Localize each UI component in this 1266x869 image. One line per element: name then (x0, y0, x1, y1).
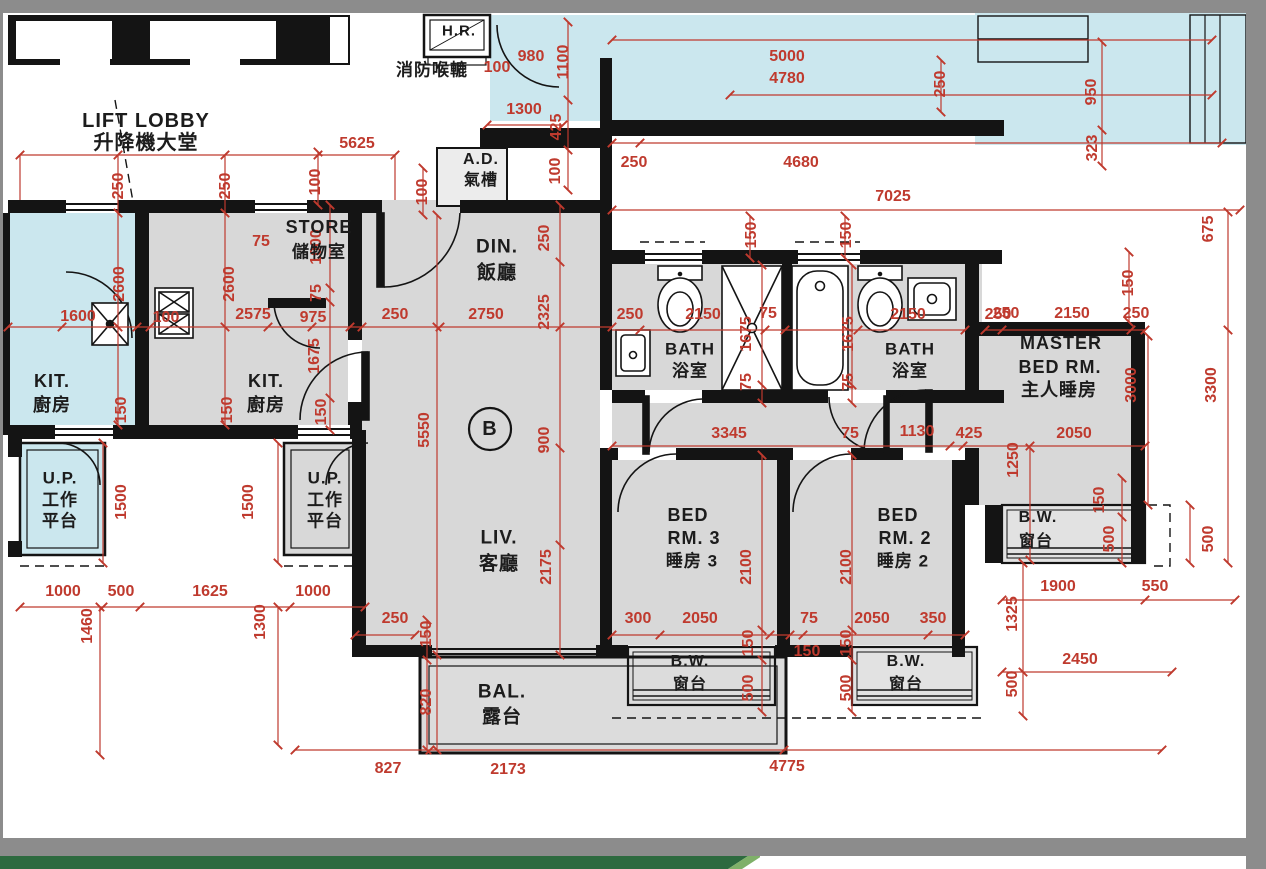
basin-icon (616, 330, 650, 376)
toilet-icon (858, 266, 902, 332)
top-gray-bar (0, 0, 1266, 13)
left-gray-bar (0, 13, 3, 838)
bathtub-icon (792, 266, 848, 390)
kitchen-sink-icon (92, 303, 128, 345)
floor-plan-drawing (0, 0, 1266, 869)
hose-reel-box (424, 15, 490, 65)
right-gray-bar (1246, 0, 1266, 869)
basin-icon (908, 278, 956, 320)
bottom-gray-bar (0, 838, 1246, 856)
shower-icon (722, 266, 782, 390)
toilet-icon (658, 266, 702, 332)
footer-green-banner (0, 856, 760, 869)
kitchen-sink-icon (155, 288, 193, 338)
floor-plan-page: 5625100980110050004780250950323130042510… (0, 0, 1266, 869)
